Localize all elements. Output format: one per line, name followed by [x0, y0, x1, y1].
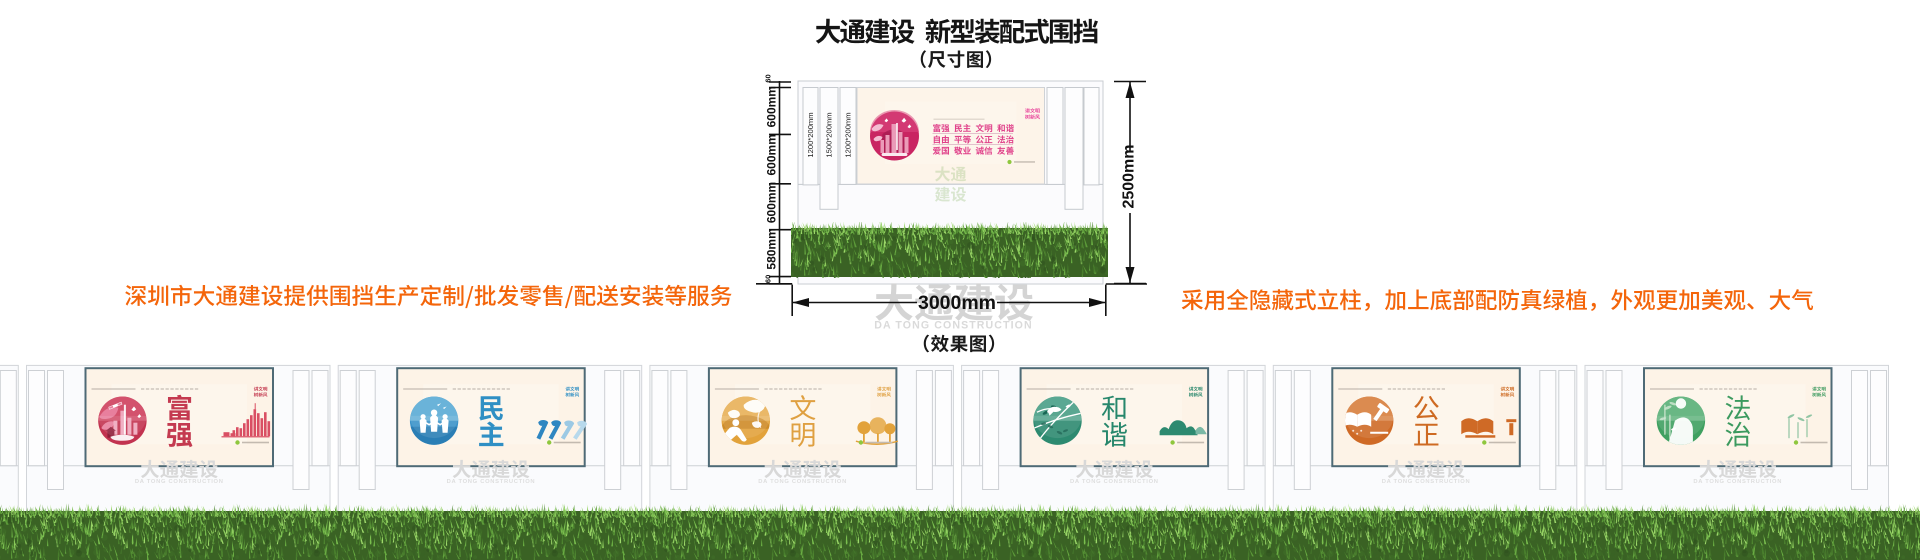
svg-text:DA TONG CONSTRUCTION: DA TONG CONSTRUCTION: [758, 479, 847, 485]
svg-text:60: 60: [764, 275, 773, 283]
svg-text:DA TONG CONSTRUCTION: DA TONG CONSTRUCTION: [1382, 479, 1471, 485]
svg-text:1200*200mm: 1200*200mm: [806, 112, 815, 157]
svg-text:3000mm: 3000mm: [918, 292, 996, 314]
svg-text:600mm: 600mm: [765, 134, 779, 175]
svg-text:DA TONG CONSTRUCTION: DA TONG CONSTRUCTION: [447, 479, 536, 485]
svg-text:60: 60: [764, 74, 773, 82]
svg-text:600mm: 600mm: [765, 182, 779, 223]
svg-text:580mm: 580mm: [765, 228, 779, 269]
svg-text:1500*200mm: 1500*200mm: [825, 112, 834, 157]
svg-text:2500mm: 2500mm: [1121, 144, 1138, 208]
svg-text:DA TONG CONSTRUCTION: DA TONG CONSTRUCTION: [1070, 479, 1159, 485]
svg-text:1200*200mm: 1200*200mm: [844, 112, 853, 157]
svg-text:DA TONG CONSTRUCTION: DA TONG CONSTRUCTION: [1693, 479, 1782, 485]
svg-text:DA TONG CONSTRUCTION: DA TONG CONSTRUCTION: [874, 320, 1033, 332]
svg-text:DA TONG CONSTRUCTION: DA TONG CONSTRUCTION: [135, 479, 224, 485]
svg-text:600mm: 600mm: [765, 86, 779, 127]
